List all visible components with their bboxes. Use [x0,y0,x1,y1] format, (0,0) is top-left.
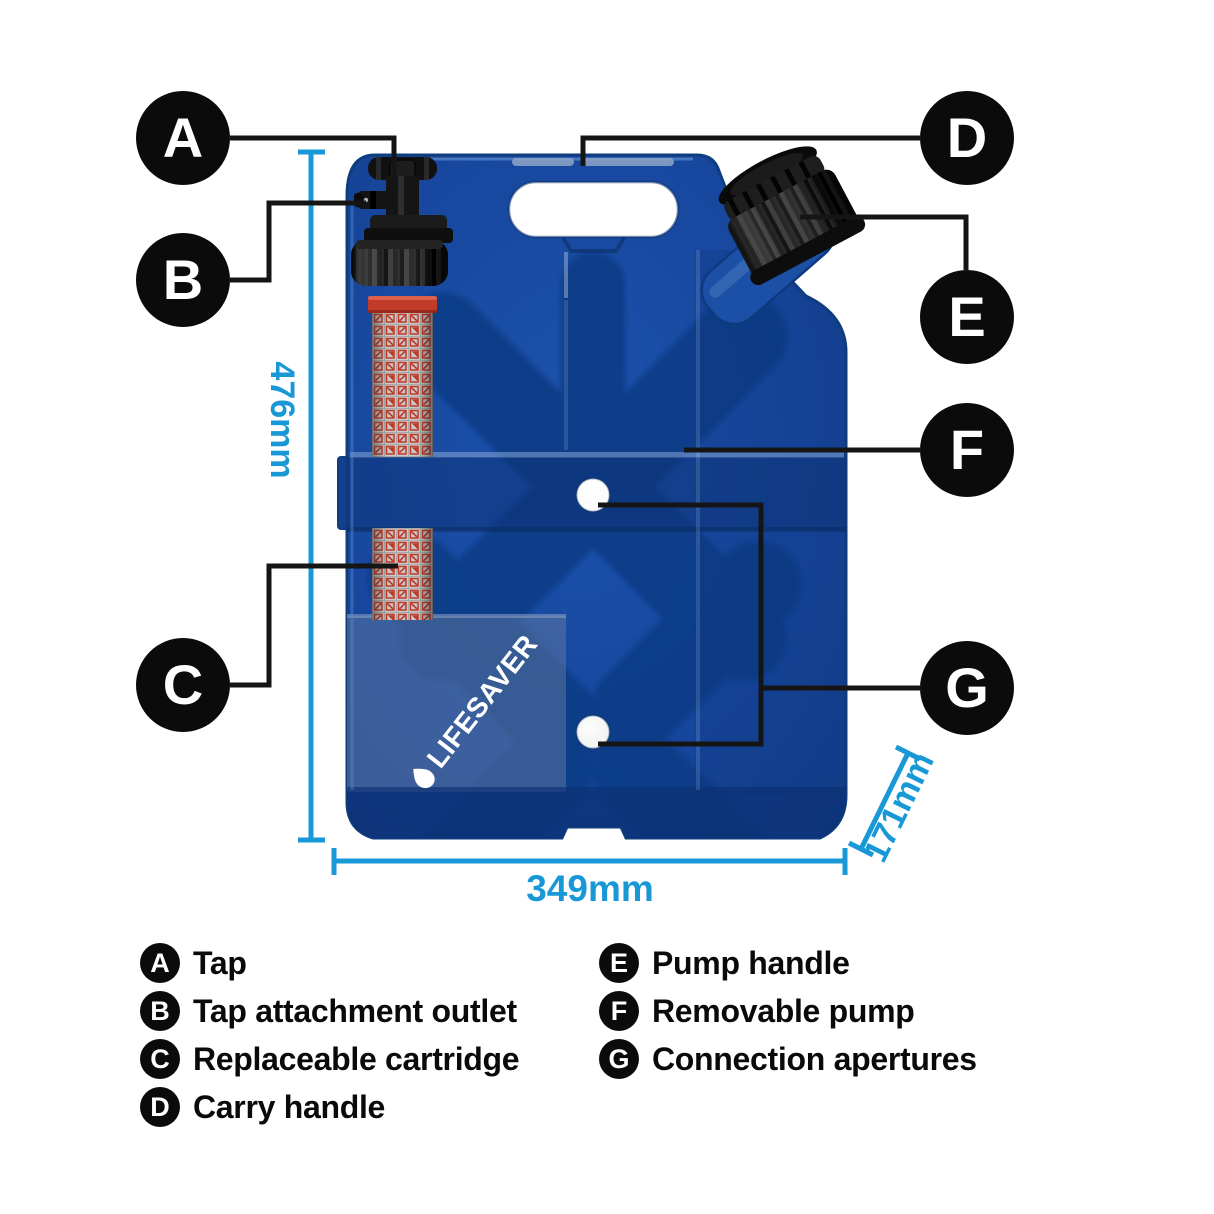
height-dimension-line [298,152,325,840]
callout-badge-e: E [920,270,1014,364]
legend-label-e: Pump handle [652,945,850,982]
legend-item-f: F Removable pump [599,991,977,1031]
bottom-band [347,787,846,838]
handle-cutout [509,182,678,237]
legend-label-a: Tap [193,945,247,982]
tap-knob-rib [376,157,381,180]
legend-label-c: Replaceable cartridge [193,1041,519,1078]
legend-label-g: Connection apertures [652,1041,977,1078]
cartridge-shading [372,311,433,457]
depth-dimension-label: 171mm [856,746,942,868]
jerrycan: LIFESAVER [338,132,868,940]
legend-badge-f: F [599,991,639,1031]
cartridge-shading [372,528,433,620]
legend-item-b: B Tap attachment outlet [140,991,519,1031]
height-dimension-label: 476mm [263,361,301,478]
callout-badge-b: B [136,233,230,327]
legend-item-e: E Pump handle [599,943,977,983]
cartridge-cap-highlight [368,296,437,300]
legend-badge-d: D [140,1087,180,1127]
diagram-canvas: 476mm 349mm 171mm [0,0,1214,1214]
legend-item-g: G Connection apertures [599,1039,977,1079]
tap-knob-rib [424,157,429,180]
cartridge-cap-shadow [368,310,437,313]
legend-badge-c: C [140,1039,180,1079]
mold-seam [564,252,568,298]
width-dimension-label: 349mm [526,868,654,909]
legend-badge-g: G [599,1039,639,1079]
legend-item-a: A Tap [140,943,519,983]
tap-cap-top [356,240,443,249]
legend-left-column: A Tap B Tap attachment outlet C Replacea… [140,943,519,1127]
callout-badge-f: F [920,403,1014,497]
legend-badge-e: E [599,943,639,983]
legend-item-c: C Replaceable cartridge [140,1039,519,1079]
handle-highlight [582,158,674,166]
mold-seam [564,300,568,450]
callout-badge-c: C [136,638,230,732]
legend-badge-a: A [140,943,180,983]
callout-badge-a: A [136,91,230,185]
legend-label-d: Carry handle [193,1089,385,1126]
handle-highlight [512,158,574,166]
nozzle-ring [370,191,376,209]
callout-badge-d: D [920,91,1014,185]
legend-item-d: D Carry handle [140,1087,519,1127]
legend-label-f: Removable pump [652,993,915,1030]
legend-badge-b: B [140,991,180,1031]
callout-badge-g: G [920,641,1014,735]
tap-stem-highlight [398,176,404,220]
legend-right-column: E Pump handle F Removable pump G Connect… [599,943,977,1079]
mold-seam [696,250,700,790]
legend-label-b: Tap attachment outlet [193,993,517,1030]
